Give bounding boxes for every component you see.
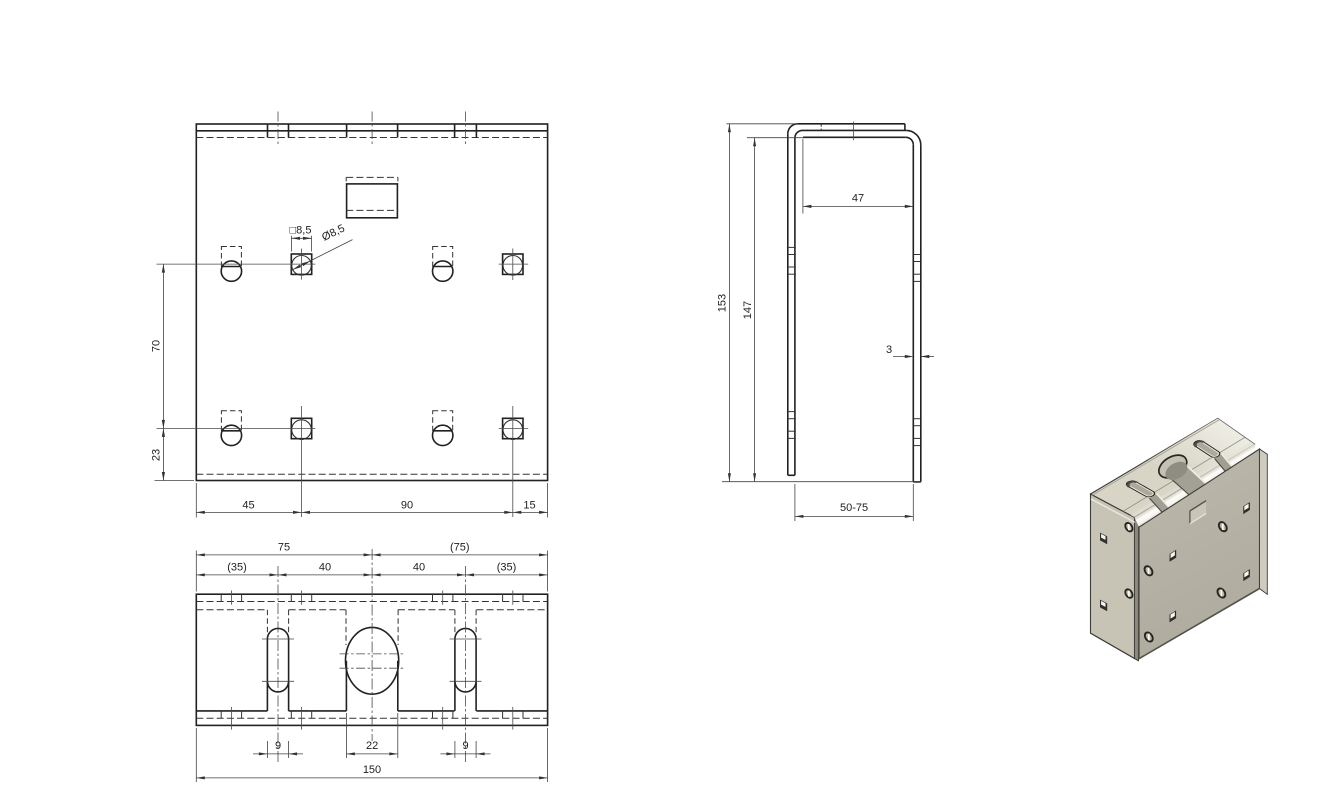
svg-text:70: 70 (151, 340, 163, 352)
svg-text:9: 9 (462, 740, 468, 752)
svg-text:75: 75 (278, 541, 290, 553)
svg-text:9: 9 (275, 740, 281, 752)
svg-text:50-75: 50-75 (840, 502, 868, 514)
svg-text:(35): (35) (227, 561, 247, 573)
svg-text:47: 47 (852, 192, 864, 204)
svg-text:(75): (75) (450, 541, 470, 553)
svg-text:3: 3 (886, 344, 892, 356)
svg-text:150: 150 (363, 764, 381, 776)
svg-text:153: 153 (717, 294, 729, 312)
svg-text:15: 15 (523, 499, 535, 511)
svg-text:45: 45 (242, 499, 254, 511)
svg-text:90: 90 (401, 499, 413, 511)
svg-text:□8,5: □8,5 (290, 224, 312, 236)
svg-text:40: 40 (413, 561, 425, 573)
svg-text:23: 23 (151, 449, 163, 461)
svg-text:40: 40 (319, 561, 331, 573)
svg-text:22: 22 (366, 740, 378, 752)
svg-text:147: 147 (742, 301, 754, 319)
svg-text:(35): (35) (497, 561, 517, 573)
